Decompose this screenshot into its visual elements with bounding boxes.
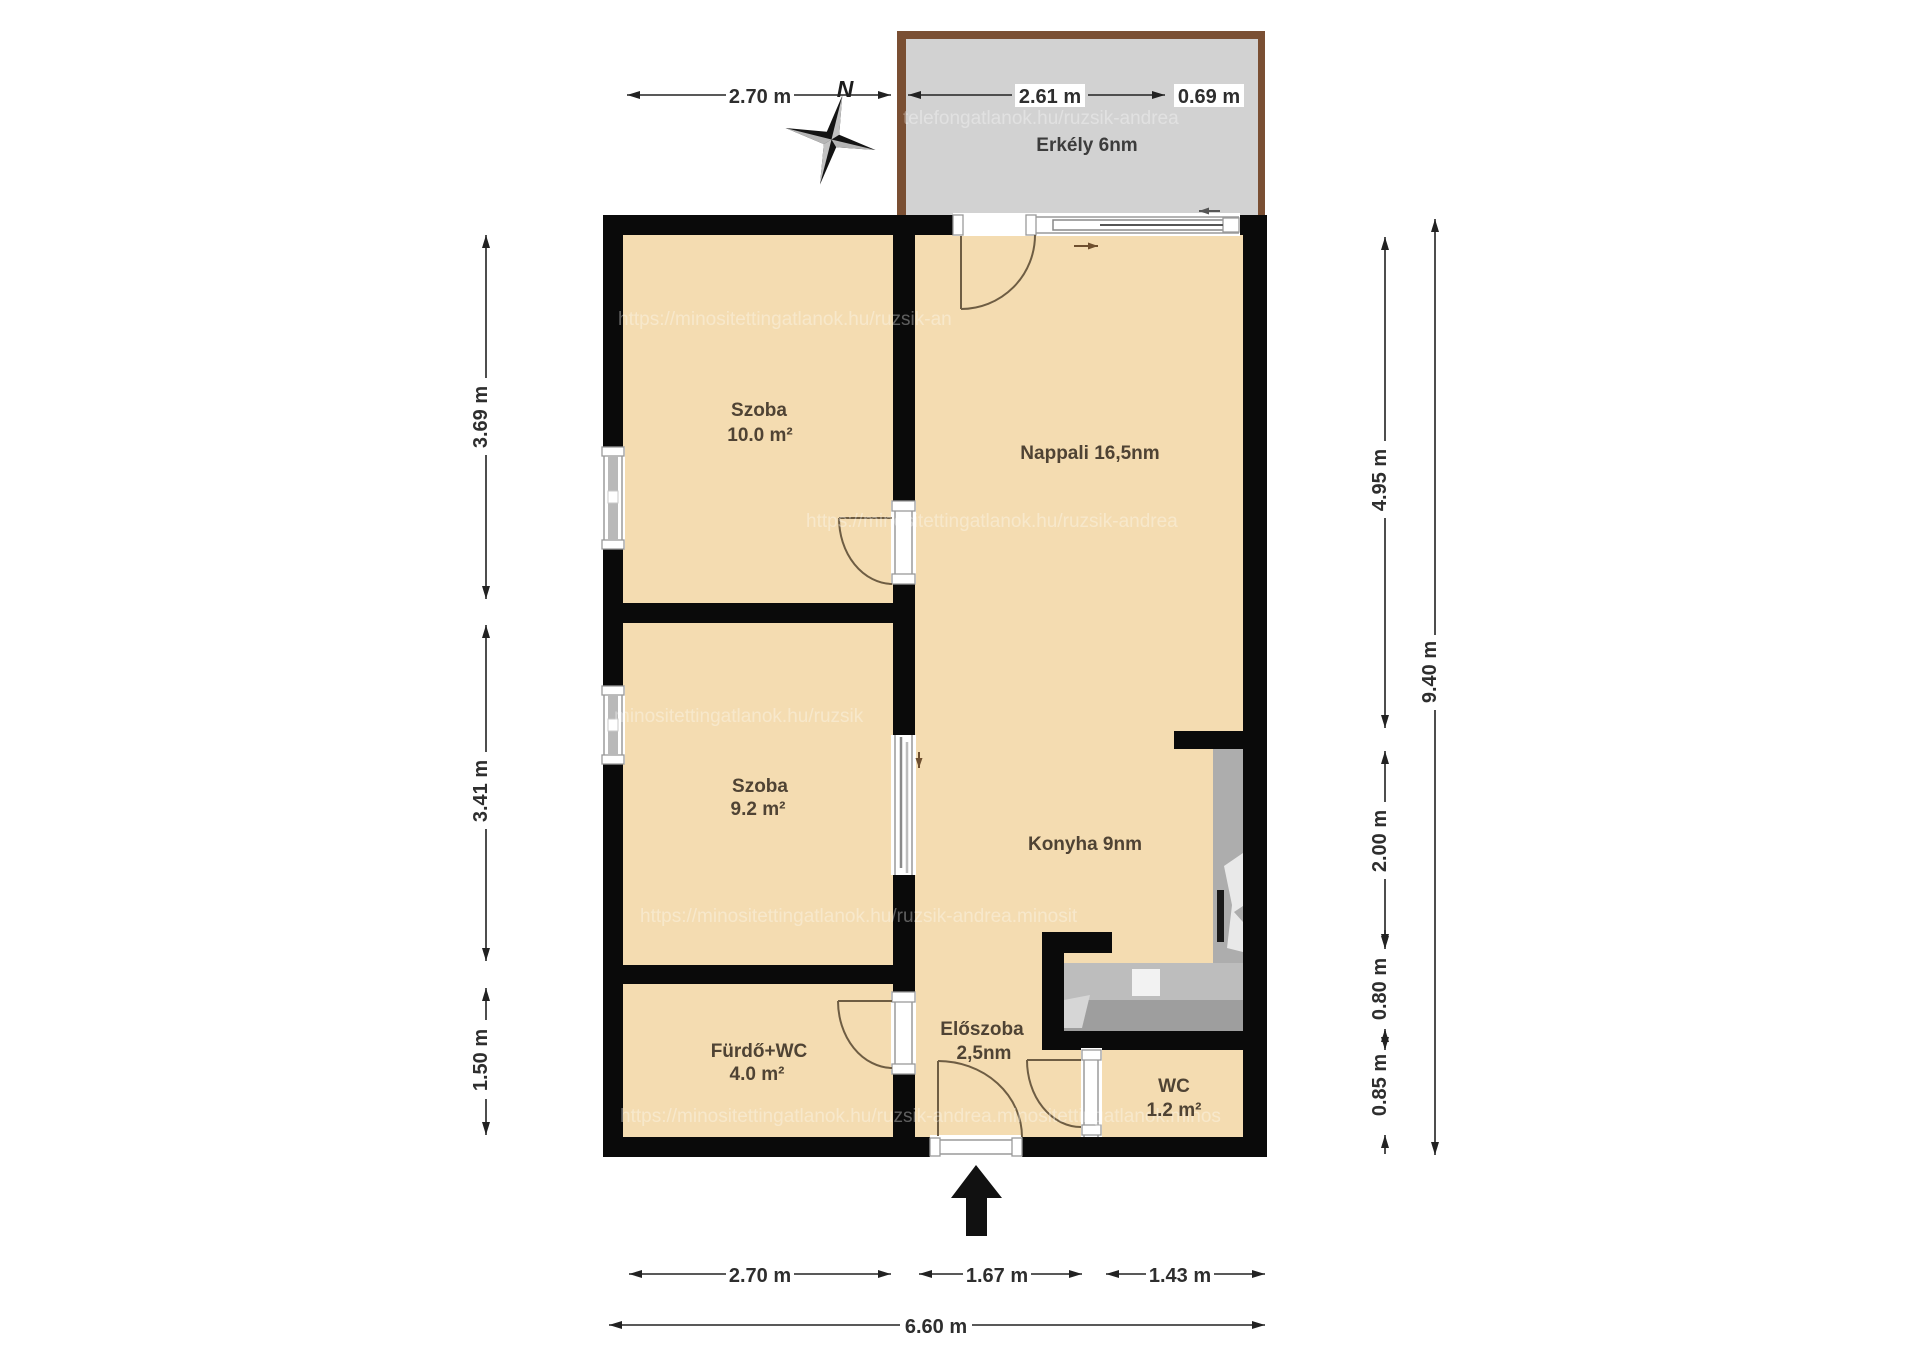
svg-text:1.67 m: 1.67 m [966,1265,1028,1287]
svg-text:1.2 m²: 1.2 m² [1147,1100,1202,1121]
svg-text:https://minositettingatlanok.h: https://minositettingatlanok.hu/ruzsik-a… [640,906,1078,927]
svg-text:1.50 m: 1.50 m [470,1029,492,1091]
svg-text:Erkély 6nm: Erkély 6nm [1036,135,1137,156]
svg-text:https://minositettingatlanok.h: https://minositettingatlanok.hu/ruzsik-a… [806,511,1178,532]
svg-text:Nappali 16,5nm: Nappali 16,5nm [1020,443,1159,464]
svg-text:1.43 m: 1.43 m [1149,1265,1211,1287]
svg-text:0.85 m: 0.85 m [1369,1054,1391,1116]
svg-text:6.60 m: 6.60 m [905,1316,967,1338]
svg-text:4.95 m: 4.95 m [1369,449,1391,511]
svg-text:0.69 m: 0.69 m [1178,86,1240,108]
svg-text:9.40 m: 9.40 m [1419,641,1441,703]
svg-text:Előszoba: Előszoba [940,1019,1024,1040]
svg-text:2.70 m: 2.70 m [729,1265,791,1287]
svg-text:3.69 m: 3.69 m [470,386,492,448]
svg-text:N: N [837,76,854,102]
svg-text:Szoba: Szoba [731,400,787,421]
svg-text:minositettingatlanok.hu/ruzsik: minositettingatlanok.hu/ruzsik [614,706,864,727]
svg-text:2,5nm: 2,5nm [957,1043,1012,1064]
svg-text:Konyha 9nm: Konyha 9nm [1028,834,1142,855]
svg-text:https://minositettingatlanok.h: https://minositettingatlanok.hu/ruzsik-a… [618,309,952,330]
svg-text:Fürdő+WC: Fürdő+WC [711,1041,808,1062]
svg-text:3.41 m: 3.41 m [470,760,492,822]
svg-text:2.00 m: 2.00 m [1369,810,1391,872]
svg-text:4.0 m²: 4.0 m² [730,1064,785,1085]
svg-text:Szoba: Szoba [732,776,788,797]
svg-text:9.2 m²: 9.2 m² [731,799,786,820]
svg-text:2.61 m: 2.61 m [1019,86,1081,108]
svg-text:10.0 m²: 10.0 m² [727,425,792,446]
svg-text:0.80 m: 0.80 m [1369,958,1391,1020]
svg-text:telefongatlanok.hu/ruzsik-andr: telefongatlanok.hu/ruzsik-andrea [903,108,1179,129]
svg-text:https://minositettingatlanok.h: https://minositettingatlanok.hu/ruzsik-a… [620,1106,1221,1127]
svg-text:WC: WC [1158,1076,1190,1097]
svg-text:2.70 m: 2.70 m [729,86,791,108]
